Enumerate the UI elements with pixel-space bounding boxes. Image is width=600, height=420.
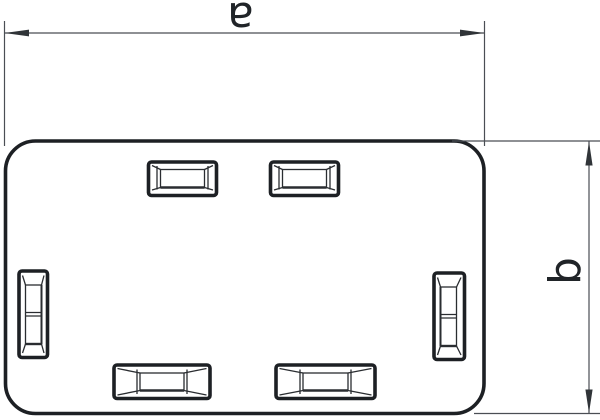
dimension-a-arrow-right	[460, 30, 485, 37]
dimension-b-arrow-top	[585, 142, 592, 166]
part-body-outline	[6, 141, 485, 414]
knockout-slot-top-left	[149, 162, 217, 196]
slot-frame	[271, 162, 339, 196]
knockout-slot-top-right	[271, 162, 339, 196]
dimension-b-label: b	[540, 257, 591, 285]
dimension-a: a	[5, 0, 485, 146]
end-piece-technical-drawing: a b	[0, 0, 600, 420]
knockout-slot-left	[19, 271, 48, 358]
slot-frame	[149, 162, 217, 196]
technical-drawing-page: a b	[0, 0, 600, 420]
knockout-slot-right	[434, 273, 465, 360]
knockout-slot-bottom-right	[276, 365, 375, 399]
dimension-b-arrow-bottom	[585, 390, 592, 414]
part-body	[6, 141, 485, 414]
dimension-a-label: a	[227, 0, 254, 43]
knockout-slot-bottom-left	[114, 365, 210, 399]
dimension-a-arrow-left	[5, 30, 30, 37]
